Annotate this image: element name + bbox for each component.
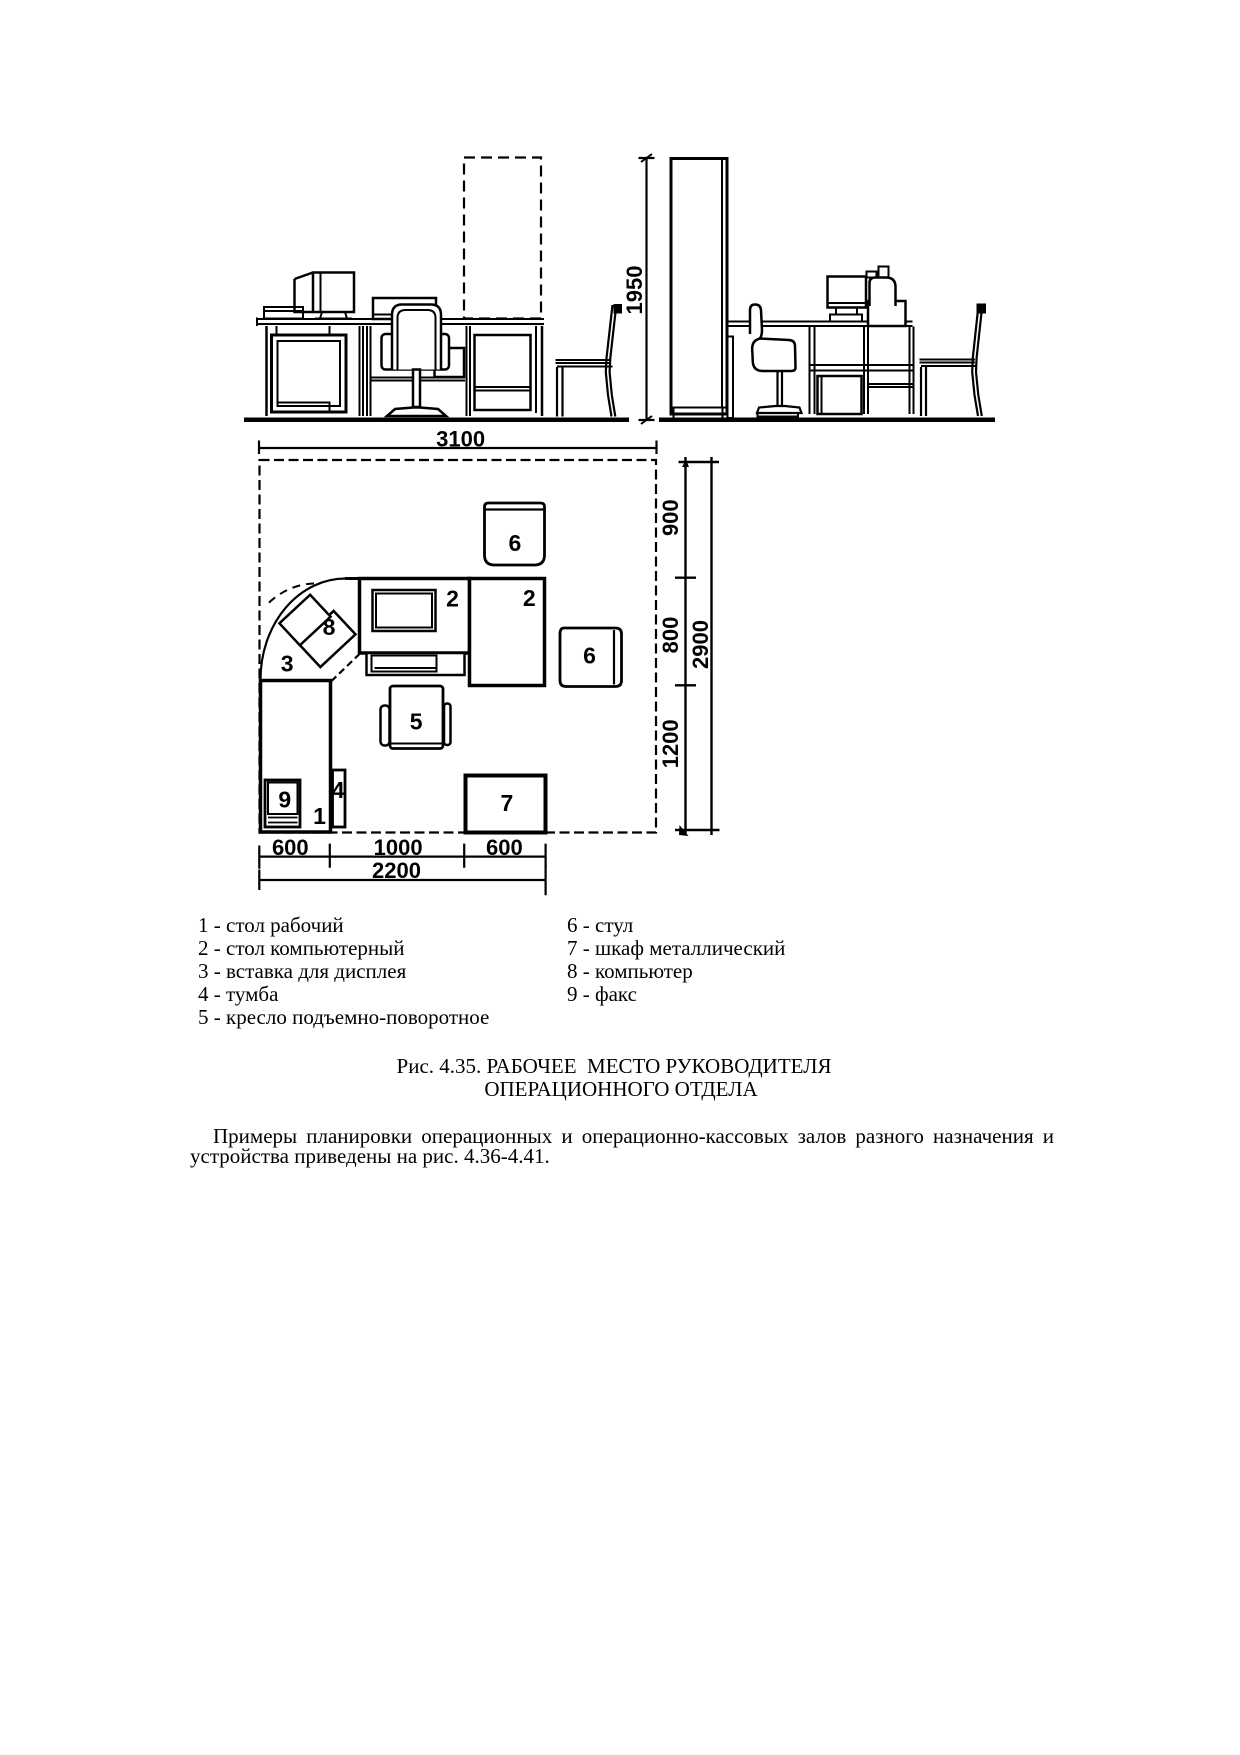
- svg-text:2: 2: [446, 586, 459, 612]
- svg-text:600: 600: [486, 835, 523, 860]
- svg-text:3: 3: [281, 650, 294, 676]
- svg-text:800: 800: [658, 617, 683, 654]
- svg-text:8: 8: [323, 614, 336, 640]
- svg-text:1950: 1950: [622, 266, 647, 315]
- svg-text:900: 900: [658, 499, 683, 536]
- svg-text:7: 7: [501, 790, 514, 816]
- svg-text:2: 2: [523, 585, 536, 611]
- svg-text:6: 6: [583, 642, 596, 668]
- svg-text:3100: 3100: [436, 427, 485, 452]
- svg-text:1: 1: [313, 803, 326, 829]
- svg-text:5: 5: [410, 709, 423, 735]
- svg-text:6: 6: [509, 530, 522, 556]
- svg-text:9: 9: [278, 787, 291, 813]
- svg-text:4: 4: [332, 777, 345, 803]
- svg-text:1000: 1000: [374, 835, 423, 860]
- svg-text:600: 600: [272, 835, 309, 860]
- svg-text:2900: 2900: [688, 620, 713, 669]
- svg-text:2200: 2200: [372, 858, 421, 883]
- svg-text:1200: 1200: [658, 719, 683, 768]
